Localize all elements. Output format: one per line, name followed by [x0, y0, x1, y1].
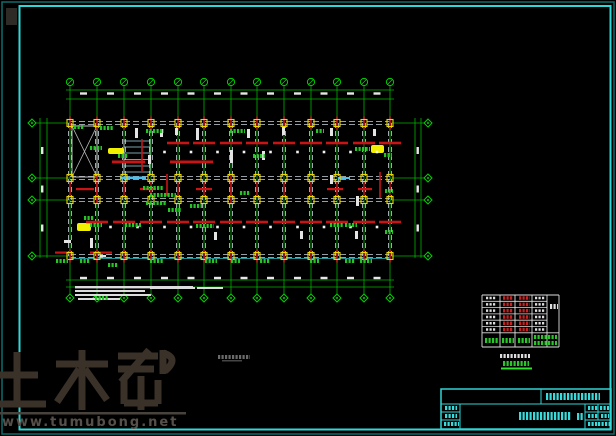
axis-grid-bubbles — [28, 78, 432, 302]
stairwell-flights — [124, 139, 150, 174]
watermark-logo — [0, 350, 186, 415]
scale-note-text — [218, 357, 250, 362]
cad-canvas — [0, 0, 616, 436]
stairwell-x-brace — [72, 126, 97, 177]
schedule-table — [482, 295, 559, 347]
annotation-white-marks — [64, 127, 376, 258]
schedule-table-caption — [500, 356, 532, 370]
annotation-green-labels — [56, 127, 393, 298]
cad-drawing-sheet: www.tumubong.net 土木帮 — [0, 0, 616, 436]
beam-marks-red — [55, 117, 401, 263]
column-markers — [67, 120, 393, 260]
watermark-url: www.tumubong.net — [2, 415, 178, 430]
title-block — [441, 389, 611, 429]
